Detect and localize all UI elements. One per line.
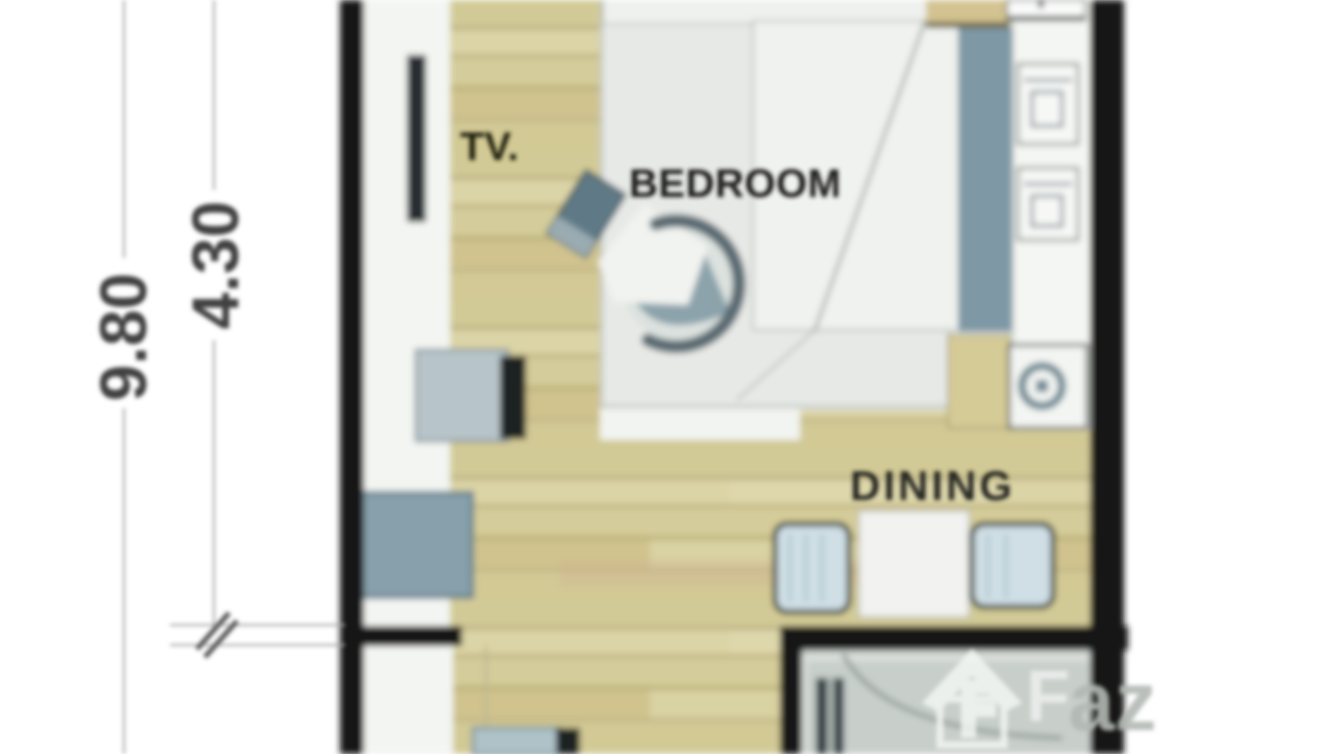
svg-text:9.80: 9.80 <box>86 273 160 401</box>
svg-text:F: F <box>1026 657 1070 737</box>
svg-text:4.30: 4.30 <box>178 201 252 329</box>
svg-text:DINING: DINING <box>850 462 1015 509</box>
svg-text:az: az <box>1068 654 1157 748</box>
svg-text:BEDROOM: BEDROOM <box>629 162 841 206</box>
svg-text:TV.: TV. <box>460 125 519 169</box>
